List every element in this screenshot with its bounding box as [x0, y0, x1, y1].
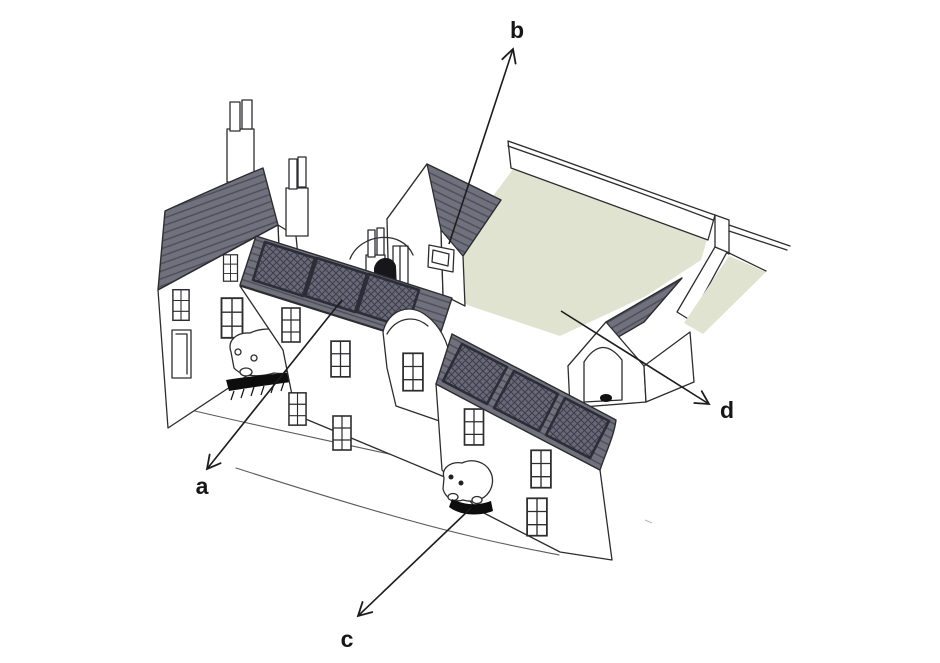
window [465, 409, 484, 445]
arched-opening [584, 347, 622, 402]
label-b: b [510, 17, 524, 43]
window [333, 416, 351, 450]
figure-dark-blob [600, 394, 612, 402]
courtyard-chimney-pot [377, 228, 384, 255]
window [403, 353, 423, 390]
label-d: d [720, 397, 734, 423]
fence-rail-lines [729, 225, 790, 250]
left-house-door [172, 330, 191, 378]
vehicle-wheel [472, 497, 482, 504]
left-house-chimney-pot-2 [242, 100, 252, 129]
window [282, 308, 300, 342]
window [222, 298, 243, 338]
vehicle-wheel [448, 494, 458, 501]
window [289, 393, 306, 425]
label-a: a [196, 473, 209, 499]
courtyard-chimney-pot [368, 230, 375, 257]
vehicle-detail-dot [459, 481, 464, 486]
car-wheel [240, 368, 252, 376]
window [527, 498, 547, 535]
window [173, 290, 189, 321]
middle-terrace-chimney-stack [286, 188, 308, 236]
label-c: c [341, 626, 354, 652]
architectural-sketch-figure: a b c d [0, 0, 940, 663]
middle-terrace-chimney-pot [298, 157, 306, 187]
window [224, 255, 238, 281]
vehicle-detail-dot [449, 475, 454, 480]
left-house-chimney-pot-1 [230, 102, 240, 131]
street-faint-mark [645, 520, 652, 523]
window [331, 341, 350, 377]
window [531, 450, 551, 487]
middle-terrace-chimney-pot [289, 159, 297, 189]
walled-courtyard [426, 141, 790, 336]
arrow-c [358, 508, 471, 616]
